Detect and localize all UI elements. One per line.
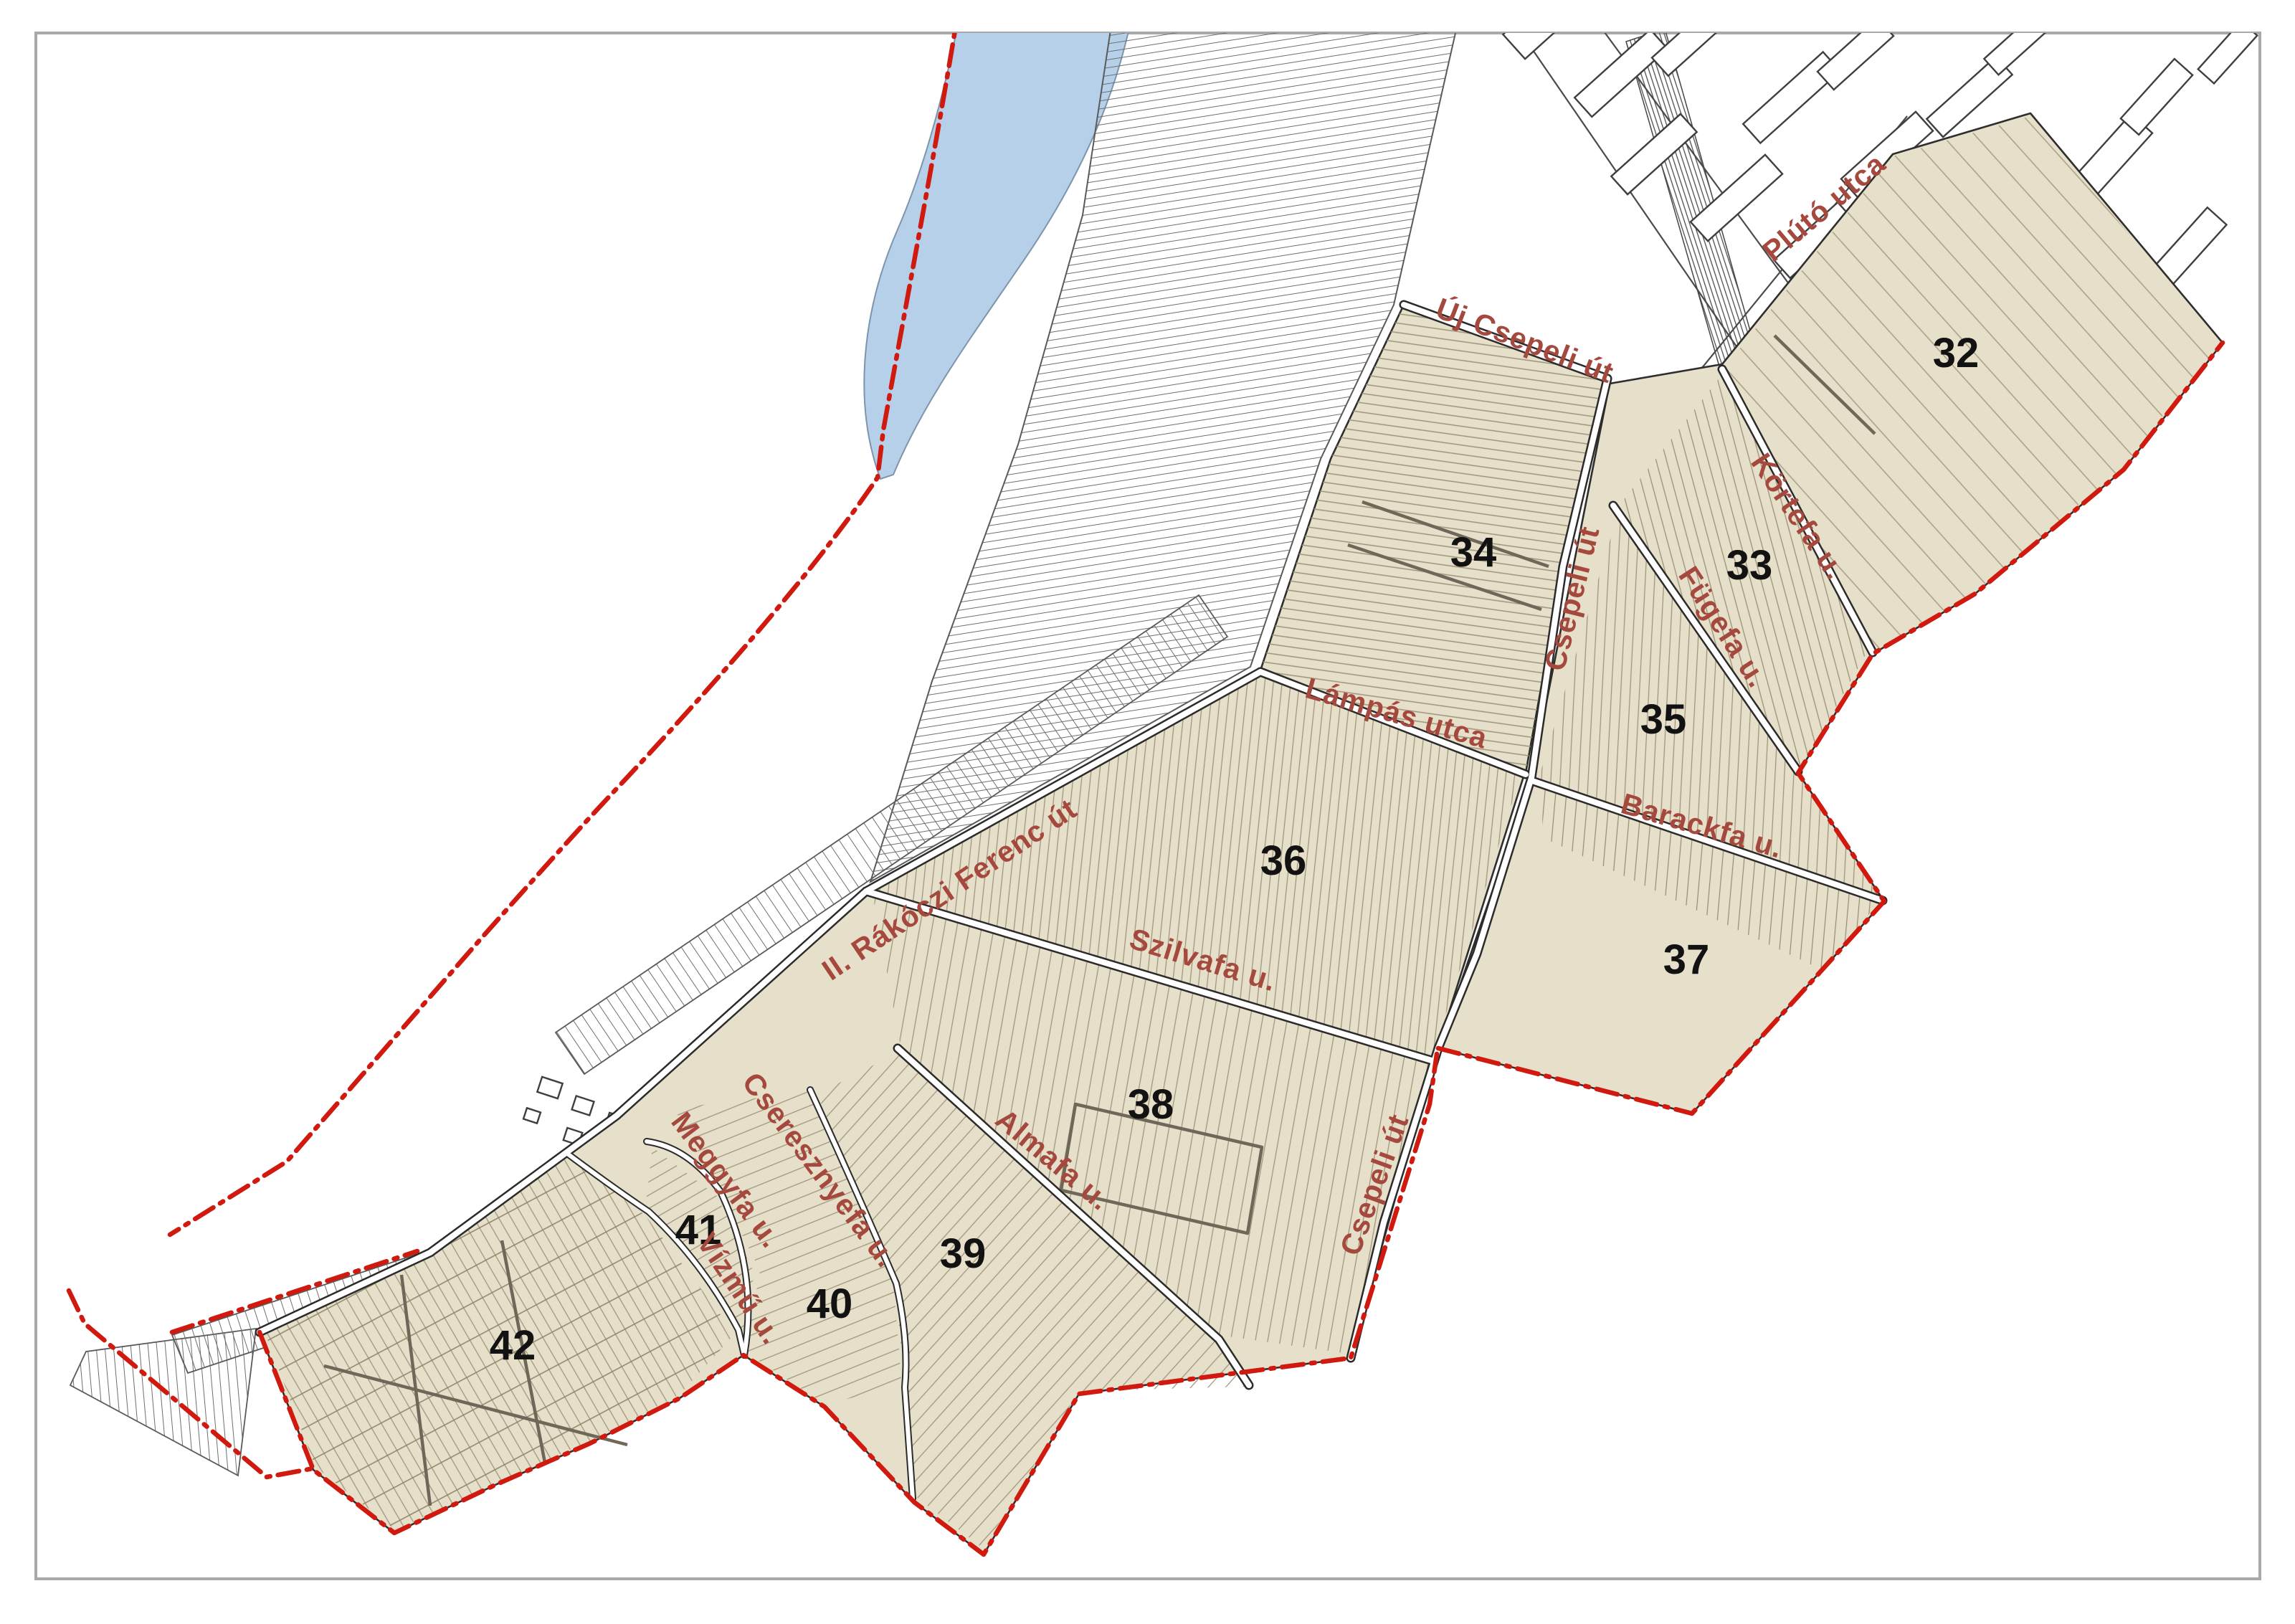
zone-number-32: 32 [1933, 330, 1980, 376]
zone-number-39: 39 [940, 1230, 987, 1277]
zone-number-37: 37 [1663, 936, 1710, 983]
zone-number-34: 34 [1450, 529, 1497, 576]
zone-number-40: 40 [807, 1281, 853, 1327]
zone-number-35: 35 [1640, 696, 1687, 743]
zone-number-42: 42 [490, 1322, 536, 1369]
zone-number-38: 38 [1128, 1081, 1174, 1128]
map-page: 32 33 34 35 36 37 38 39 40 41 42 Plútó u… [0, 0, 2295, 1624]
district-map: 32 33 34 35 36 37 38 39 40 41 42 Plútó u… [0, 0, 2295, 1624]
zone-number-33: 33 [1726, 542, 1773, 589]
zone-number-36: 36 [1260, 837, 1307, 884]
